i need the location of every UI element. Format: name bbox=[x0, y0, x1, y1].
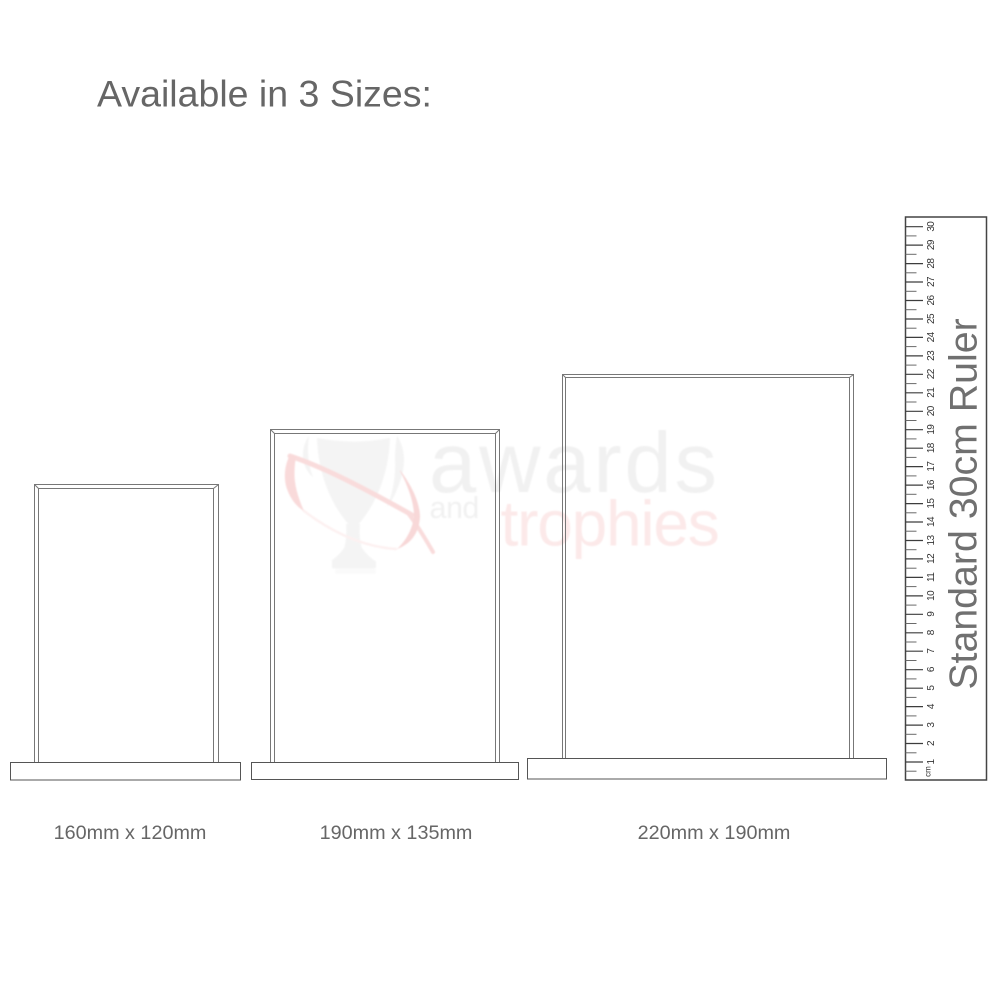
svg-text:22: 22 bbox=[926, 368, 937, 379]
svg-text:23: 23 bbox=[926, 350, 937, 361]
svg-text:27: 27 bbox=[926, 276, 937, 287]
svg-text:cm: cm bbox=[924, 766, 933, 777]
svg-text:Available in 3 Sizes:: Available in 3 Sizes: bbox=[97, 73, 432, 115]
svg-text:26: 26 bbox=[926, 295, 937, 306]
svg-text:10: 10 bbox=[926, 590, 937, 601]
svg-text:30: 30 bbox=[926, 221, 937, 232]
svg-text:160mm x 120mm: 160mm x 120mm bbox=[54, 822, 207, 844]
svg-text:20: 20 bbox=[926, 405, 937, 416]
svg-text:220mm x 190mm: 220mm x 190mm bbox=[638, 822, 791, 844]
svg-text:19: 19 bbox=[926, 424, 937, 435]
svg-text:Standard 30cm Ruler: Standard 30cm Ruler bbox=[942, 318, 986, 689]
svg-text:11: 11 bbox=[926, 572, 937, 582]
svg-text:29: 29 bbox=[926, 239, 937, 250]
svg-text:190mm x 135mm: 190mm x 135mm bbox=[320, 822, 473, 844]
svg-text:16: 16 bbox=[926, 479, 937, 490]
svg-text:and: and bbox=[430, 491, 479, 525]
svg-text:17: 17 bbox=[926, 461, 937, 472]
svg-text:13: 13 bbox=[926, 535, 937, 546]
svg-text:12: 12 bbox=[926, 553, 937, 564]
svg-text:25: 25 bbox=[926, 313, 937, 324]
svg-text:15: 15 bbox=[926, 498, 937, 509]
svg-text:28: 28 bbox=[926, 258, 937, 269]
svg-text:trophies: trophies bbox=[501, 488, 719, 560]
svg-text:18: 18 bbox=[926, 442, 937, 453]
svg-text:24: 24 bbox=[926, 331, 937, 342]
svg-text:21: 21 bbox=[926, 387, 937, 398]
svg-text:14: 14 bbox=[926, 516, 937, 527]
